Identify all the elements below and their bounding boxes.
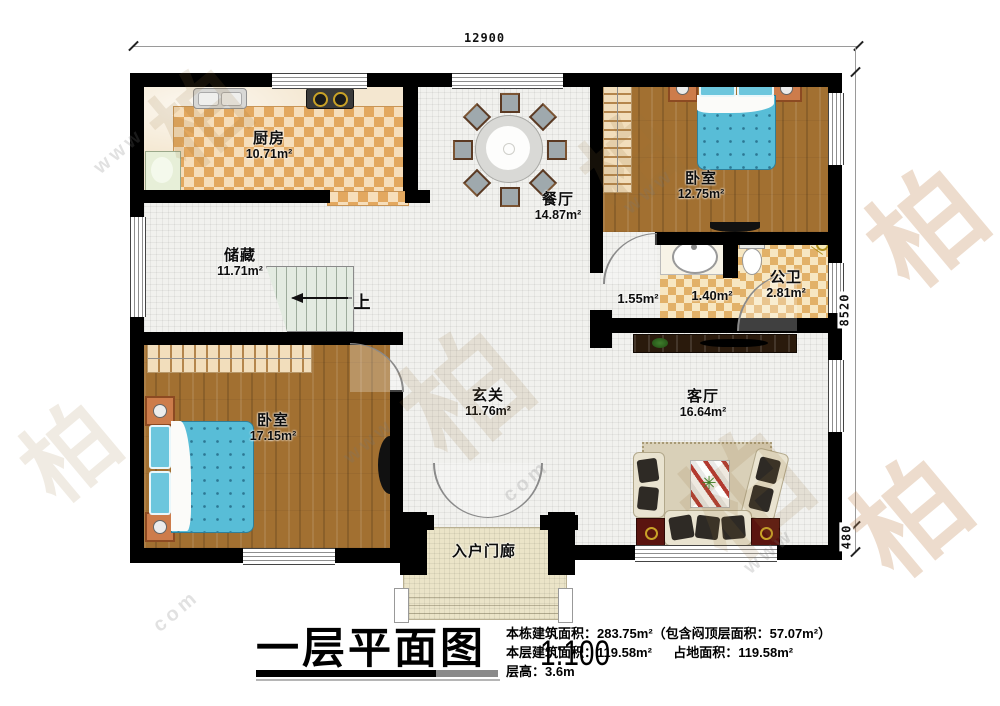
sofa-cushion — [721, 515, 746, 540]
end-table-right — [751, 518, 780, 547]
fridge — [145, 151, 181, 191]
room-name: 餐厅 — [508, 192, 608, 208]
kitchen-stove — [306, 88, 354, 109]
porch-steps — [403, 590, 565, 618]
dining-bedroom-wall — [590, 73, 603, 273]
end-table-ring — [645, 527, 658, 540]
sofa-cushion — [636, 458, 659, 484]
window-bedroom-tr-right — [828, 93, 844, 165]
room-label-living: 客厅 16.64m² — [653, 389, 753, 419]
title-underline-gray — [436, 670, 498, 677]
room-area: 10.71m² — [219, 147, 319, 161]
nightstand-fan — [153, 404, 167, 418]
bedroom-bl-right-wall-a — [390, 332, 403, 344]
room-label-storage: 储藏 11.71m² — [190, 248, 290, 278]
dining-chair — [453, 140, 473, 160]
tv-plant — [652, 338, 668, 348]
dining-table-center — [503, 143, 515, 155]
porch-post-right — [558, 588, 573, 623]
porch-post-left — [394, 588, 409, 623]
end-table-left — [636, 518, 665, 547]
dim-height-label: 8520 — [837, 292, 851, 329]
room-label-bedroom-tr: 卧室 12.75m² — [651, 171, 751, 201]
room-area: 16.64m² — [653, 405, 753, 419]
kitchen-bottom-stub — [405, 190, 430, 203]
dim-line-top — [133, 46, 858, 47]
sofa-cushion — [748, 484, 774, 512]
sink-basin-right — [221, 92, 242, 106]
room-area: 17.15m² — [223, 429, 323, 443]
title-underline-thin — [256, 679, 500, 681]
sofa-cushion — [755, 456, 781, 484]
sink-basin-left — [198, 92, 219, 106]
kitchen-pass-counter — [327, 191, 409, 206]
dim-porch-label: 480 — [839, 523, 853, 552]
bed-tr — [697, 74, 774, 168]
window-kitchen-top — [272, 73, 367, 89]
tv-bedroom-tr — [710, 222, 760, 232]
kitchen-bottom-wall — [130, 190, 330, 203]
dim-width-label: 12900 — [462, 31, 507, 45]
room-area: 12.75m² — [651, 187, 751, 201]
room-label-bedroom-bl: 卧室 17.15m² — [223, 413, 323, 443]
kitchen-right-wall — [403, 86, 418, 191]
info-line-1: 本栋建筑面积：283.75m²（包含闷顶层面积：57.07m²） — [506, 624, 831, 643]
sofa-left — [633, 452, 665, 518]
wall-left — [130, 73, 144, 563]
wardrobe-tr — [603, 76, 632, 193]
info-line-3: 层高：3.6m — [506, 662, 831, 681]
stove-burner-left — [313, 92, 328, 107]
kitchen-sink — [193, 88, 247, 109]
dim-line-right — [855, 46, 856, 553]
fridge-highlight — [151, 157, 173, 183]
watermark-glyph-right: 柏 — [827, 123, 1000, 316]
sofa-cushion — [637, 486, 659, 511]
sofa-cushion — [695, 515, 721, 541]
room-name: 厨房 — [219, 131, 319, 147]
end-table-ring — [760, 527, 773, 540]
porch-stub-left — [400, 512, 427, 575]
dining-table — [475, 115, 543, 183]
foyer-doorwall-left — [427, 515, 434, 530]
sofa-bottom — [664, 510, 752, 546]
stairs-arrow-head — [291, 293, 303, 303]
stairs-direction-line — [302, 297, 348, 299]
room-area: 11.76m² — [438, 404, 538, 418]
plan-title: 一层平面图 — [256, 628, 486, 671]
dining-chair — [547, 140, 567, 160]
wardrobe-tr-rail — [617, 77, 618, 192]
title-underline-black — [256, 670, 436, 677]
room-name: 卧室 — [651, 171, 751, 187]
room-area: 14.87m² — [508, 208, 608, 222]
watermark-text: com — [149, 586, 204, 638]
info-block: 本栋建筑面积：283.75m²（包含闷顶层面积：57.07m²） 本层建筑面积：… — [506, 624, 831, 681]
room-label-bath: 公卫 2.81m² — [736, 270, 836, 300]
tv-living — [700, 339, 768, 347]
room-name: 客厅 — [653, 389, 753, 405]
info-line-2-right: 占地面积：119.58m² — [673, 645, 793, 660]
room-label-dining: 餐厅 14.87m² — [508, 192, 608, 222]
room-label-kitchen: 厨房 10.71m² — [219, 131, 319, 161]
stove-burner-right — [333, 92, 348, 107]
window-dining-top — [452, 73, 563, 89]
info-line-2: 本层建筑面积：119.58m² 占地面积：119.58m² — [506, 643, 831, 662]
table-plant: ✳ — [700, 474, 718, 492]
foyer-doorwall-right — [540, 515, 578, 530]
bed-bl-pillow-top — [149, 425, 171, 469]
dining-chair — [500, 93, 520, 113]
bed-bl-pillow-bottom — [149, 471, 171, 515]
window-bedroom-bl-bottom — [243, 548, 335, 565]
bath-bottom-wall — [600, 318, 842, 333]
floor-plan-canvas: 上 ✳ — [0, 0, 1000, 706]
wardrobe-bl — [147, 344, 312, 373]
room-area: 11.71m² — [190, 264, 290, 278]
window-living-bottom — [635, 545, 777, 562]
room-name: 入户门廊 — [434, 544, 534, 560]
bath-sink — [672, 240, 718, 274]
stairs-up-label: 上 — [352, 288, 372, 313]
window-living-right — [828, 360, 844, 432]
window-storage-left — [130, 217, 146, 317]
room-name: 公卫 — [736, 270, 836, 286]
room-name: 玄关 — [438, 388, 538, 404]
bedroom-bl-right-wall-b — [390, 390, 403, 563]
bedroom-tr-bottom-wall — [655, 232, 830, 245]
room-label-foyer: 玄关 11.76m² — [438, 388, 538, 418]
watermark-glyph: 柏 — [0, 366, 144, 527]
sofa-cushion — [668, 514, 695, 541]
room-name: 卧室 — [223, 413, 323, 429]
bedroom-bl-top-wall — [130, 332, 403, 345]
room-label-porch: 入户门廊 — [434, 544, 534, 560]
room-name: 储藏 — [190, 248, 290, 264]
wardrobe-bl-rail — [148, 358, 311, 359]
room-area: 2.81m² — [736, 286, 836, 300]
info-line-2-left: 本层建筑面积：119.58m² — [506, 645, 652, 660]
